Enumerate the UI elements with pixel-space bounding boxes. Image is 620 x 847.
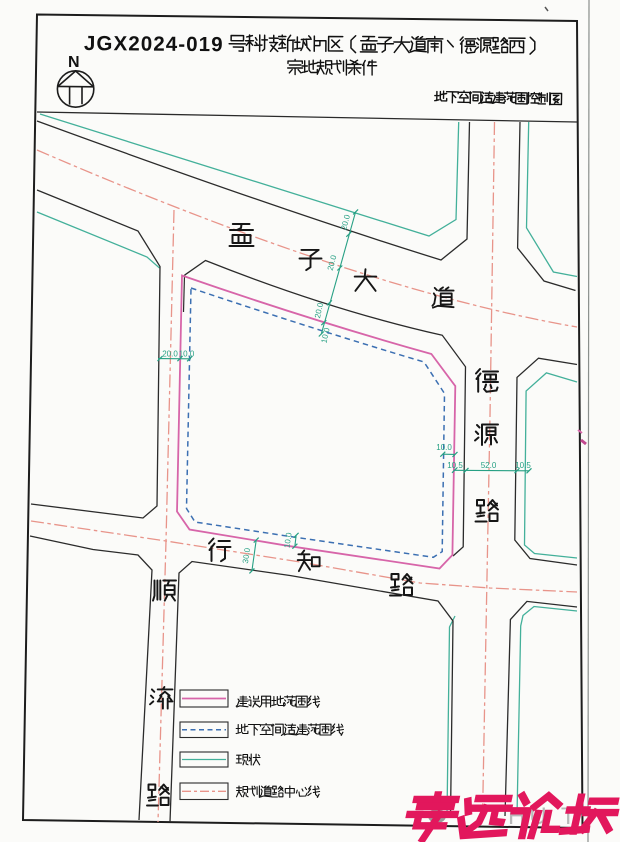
svg-text:10.5: 10.5 bbox=[447, 461, 463, 470]
svg-text:52.0: 52.0 bbox=[481, 461, 497, 470]
svg-text:JGX2024-019: JGX2024-019 bbox=[84, 32, 224, 56]
svg-text:10.0: 10.0 bbox=[179, 350, 195, 359]
svg-text:20.0: 20.0 bbox=[162, 350, 178, 359]
svg-text:N: N bbox=[68, 54, 80, 71]
svg-text:10.0: 10.0 bbox=[436, 443, 452, 452]
svg-text:10.5: 10.5 bbox=[515, 461, 531, 470]
